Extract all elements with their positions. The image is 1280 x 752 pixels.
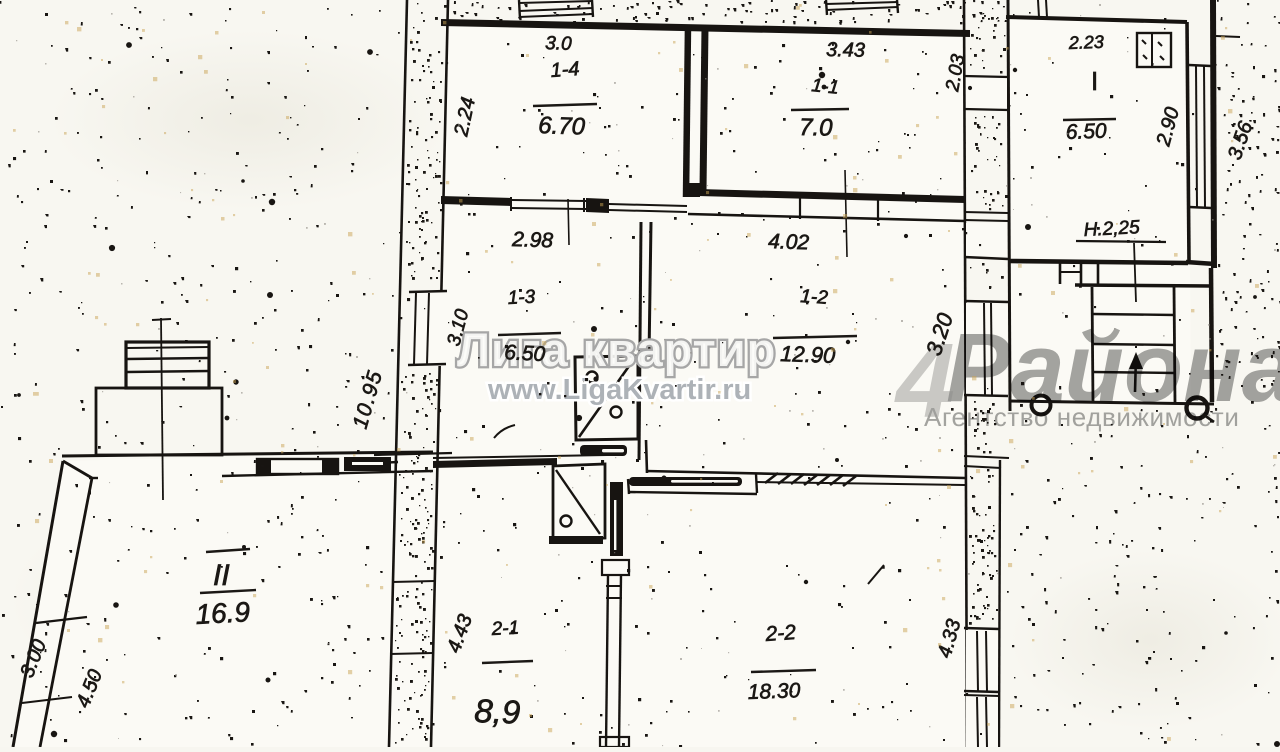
svg-text:2.98: 2.98 [511,228,554,252]
svg-text:3.43: 3.43 [826,39,865,62]
svg-text:16.9: 16.9 [195,596,251,630]
svg-text:7.0: 7.0 [799,114,833,142]
svg-text:12.90: 12.90 [780,341,837,368]
svg-text:I: I [1091,66,1098,96]
svg-text:6.70: 6.70 [538,112,586,141]
svg-text:www.LigaKvartir.ru: www.LigaKvartir.ru [487,374,751,406]
svg-text:1-4: 1-4 [550,58,580,82]
svg-text:2.23: 2.23 [1067,32,1104,53]
svg-text:2-2: 2-2 [764,621,797,646]
svg-text:1-2: 1-2 [800,286,829,309]
svg-text:6.50: 6.50 [504,341,546,366]
svg-text:II: II [213,559,230,592]
svg-text:6.50: 6.50 [1065,120,1107,144]
svg-text:H.2,25: H.2,25 [1083,217,1140,241]
svg-text:4.02: 4.02 [768,230,810,254]
svg-text:8,9: 8,9 [474,692,521,731]
svg-text:3.0: 3.0 [545,33,573,55]
svg-text:18.30: 18.30 [747,679,801,704]
svg-text:2-1: 2-1 [490,618,520,640]
svg-text:Агентство недвижимости: Агентство недвижимости [924,402,1239,432]
